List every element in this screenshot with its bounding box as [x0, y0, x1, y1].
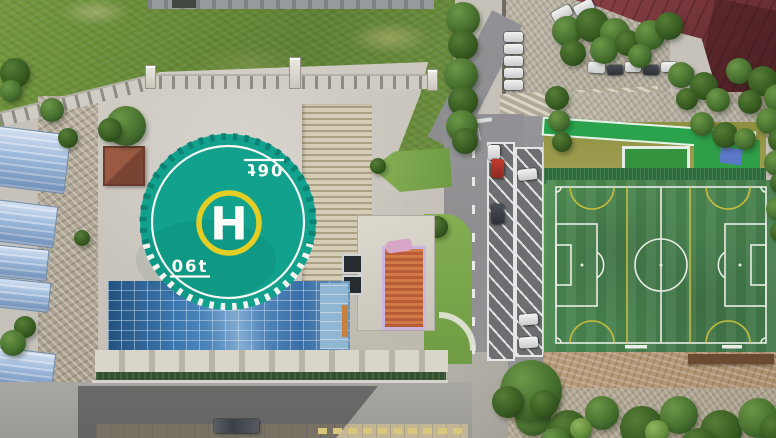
car: [491, 159, 505, 179]
gate-pillar: [428, 70, 437, 90]
car: [504, 68, 523, 78]
car: [519, 313, 539, 326]
tree: [452, 128, 478, 154]
car: [607, 65, 624, 76]
shrub: [74, 230, 90, 246]
blue-metal-roof: [0, 244, 50, 281]
shrub: [570, 418, 592, 438]
car: [504, 80, 523, 90]
car: [488, 145, 500, 160]
tree: [706, 88, 730, 112]
gate-pillar: [290, 58, 300, 88]
helipad-letter: H: [210, 198, 248, 251]
car: [504, 56, 523, 66]
lane-dashes: [472, 142, 475, 354]
football-pitch: [546, 180, 776, 354]
shrub: [40, 98, 64, 122]
car: [519, 336, 539, 348]
weight-marking-north: 06t: [244, 160, 284, 179]
shrub: [58, 128, 78, 148]
tree: [676, 88, 698, 110]
car: [491, 204, 505, 224]
rooftop-object: [172, 0, 196, 8]
shrub: [690, 112, 714, 136]
tree: [738, 90, 762, 114]
pitch-markings: [546, 180, 776, 354]
svg-text:06t: 06t: [246, 160, 283, 179]
shrub: [370, 158, 386, 174]
tree: [545, 86, 569, 110]
tree: [492, 386, 524, 418]
tree: [448, 30, 478, 60]
shrub: [0, 330, 26, 356]
glass-orange-strip: [342, 305, 348, 337]
timber-edge: [688, 354, 774, 364]
car: [214, 419, 259, 433]
curb-line: [92, 380, 448, 383]
tree: [628, 44, 652, 68]
gate-pillar: [146, 66, 155, 88]
aerial-photo: H 06t 06t: [0, 0, 776, 438]
shrub: [645, 420, 669, 438]
tree: [560, 40, 586, 66]
car: [504, 44, 523, 54]
facade-band: [95, 350, 448, 374]
car: [504, 32, 523, 42]
tree: [548, 110, 570, 132]
blue-metal-roof: [0, 277, 51, 313]
blue-tarp: [719, 147, 743, 166]
tree: [655, 12, 683, 40]
blue-metal-roof: [0, 200, 58, 249]
tree: [530, 390, 558, 418]
car: [517, 168, 537, 181]
helipad: H 06t 06t: [136, 130, 320, 314]
shrub: [0, 80, 22, 102]
weight-marking-south: 06t: [170, 257, 210, 277]
tree: [552, 132, 572, 152]
tiled-roof-under-construction: [382, 246, 426, 330]
svg-text:06t: 06t: [172, 257, 209, 276]
shrub: [734, 128, 756, 150]
skylight-window: [342, 254, 363, 274]
tactile-paving: [318, 428, 466, 434]
tree: [590, 36, 618, 64]
tree: [98, 118, 122, 142]
